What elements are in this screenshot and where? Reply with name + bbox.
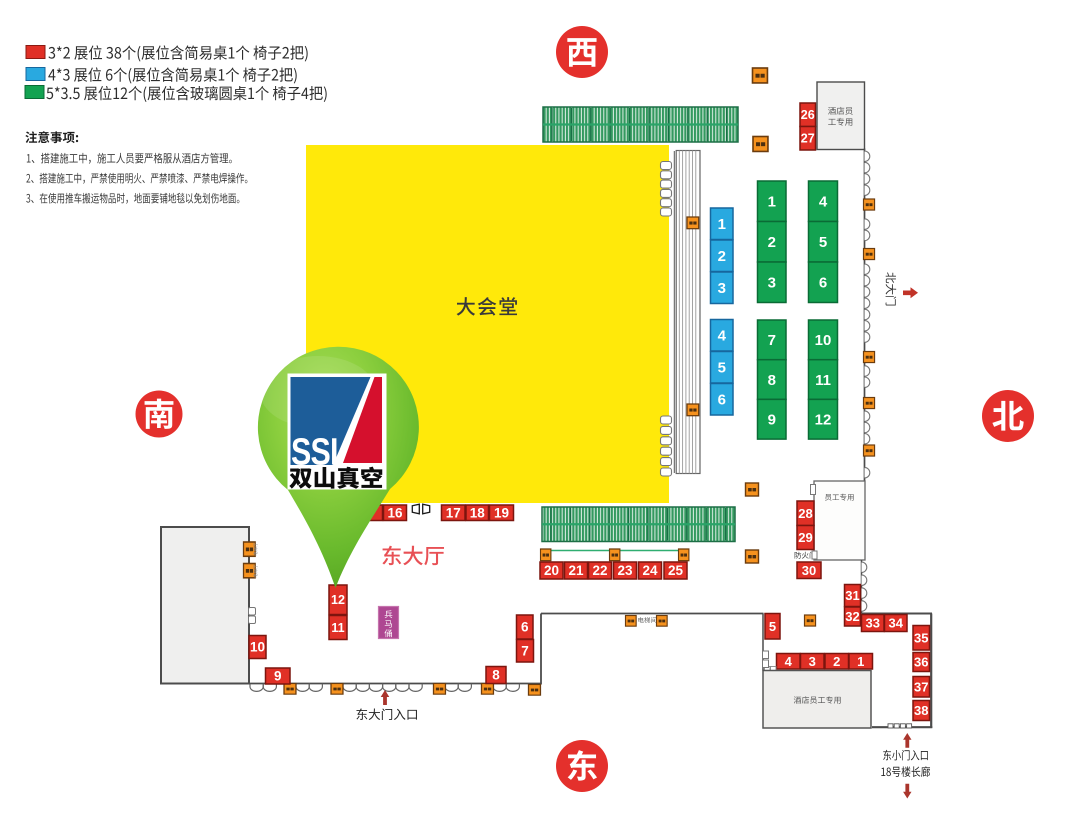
- svg-text:27: 27: [801, 132, 815, 146]
- svg-text:2: 2: [833, 654, 840, 669]
- svg-text:7: 7: [521, 643, 529, 658]
- svg-text:6: 6: [819, 275, 827, 292]
- svg-text:29: 29: [798, 530, 812, 545]
- svg-text:9: 9: [274, 669, 282, 684]
- svg-text:25: 25: [668, 563, 684, 578]
- svg-text:23: 23: [617, 563, 633, 578]
- svg-text:18: 18: [470, 505, 486, 520]
- svg-text:11: 11: [815, 372, 831, 389]
- svg-text:34: 34: [889, 616, 904, 631]
- svg-text:28: 28: [798, 506, 812, 521]
- svg-text:38: 38: [914, 703, 928, 718]
- svg-text:36: 36: [914, 655, 928, 670]
- svg-text:SSI: SSI: [291, 431, 338, 473]
- svg-text:3: 3: [809, 654, 816, 669]
- svg-text:4: 4: [819, 194, 828, 211]
- svg-text:3: 3: [718, 280, 726, 297]
- svg-text:32: 32: [845, 609, 859, 624]
- svg-text:6: 6: [521, 620, 529, 635]
- svg-text:21: 21: [568, 563, 584, 578]
- svg-text:11: 11: [331, 621, 344, 635]
- svg-text:7: 7: [768, 332, 776, 349]
- svg-text:24: 24: [642, 563, 658, 578]
- svg-text:33: 33: [866, 616, 880, 631]
- svg-text:1: 1: [768, 194, 776, 211]
- svg-text:10: 10: [815, 332, 832, 349]
- svg-text:16: 16: [387, 505, 403, 520]
- svg-text:17: 17: [446, 505, 461, 520]
- svg-text:12: 12: [331, 593, 345, 607]
- svg-text:4: 4: [785, 654, 793, 669]
- svg-text:35: 35: [914, 630, 928, 645]
- svg-text:5: 5: [819, 234, 827, 251]
- svg-text:5: 5: [769, 619, 776, 634]
- svg-text:26: 26: [801, 108, 815, 122]
- svg-text:6: 6: [718, 392, 726, 409]
- svg-text:5: 5: [718, 360, 726, 377]
- svg-text:4: 4: [718, 328, 727, 345]
- svg-text:37: 37: [914, 679, 928, 694]
- svg-text:30: 30: [802, 563, 816, 578]
- svg-text:2: 2: [718, 248, 726, 265]
- svg-text:8: 8: [492, 668, 500, 683]
- svg-text:8: 8: [768, 372, 776, 389]
- svg-text:10: 10: [250, 640, 265, 655]
- svg-text:20: 20: [544, 563, 559, 578]
- svg-text:31: 31: [845, 588, 859, 603]
- svg-text:2: 2: [768, 234, 776, 251]
- svg-text:19: 19: [494, 505, 509, 520]
- svg-text:9: 9: [768, 412, 776, 429]
- svg-text:1: 1: [857, 654, 864, 669]
- svg-text:22: 22: [592, 563, 607, 578]
- svg-text:12: 12: [815, 412, 832, 429]
- svg-text:3: 3: [768, 275, 776, 292]
- svg-text:1: 1: [718, 216, 726, 233]
